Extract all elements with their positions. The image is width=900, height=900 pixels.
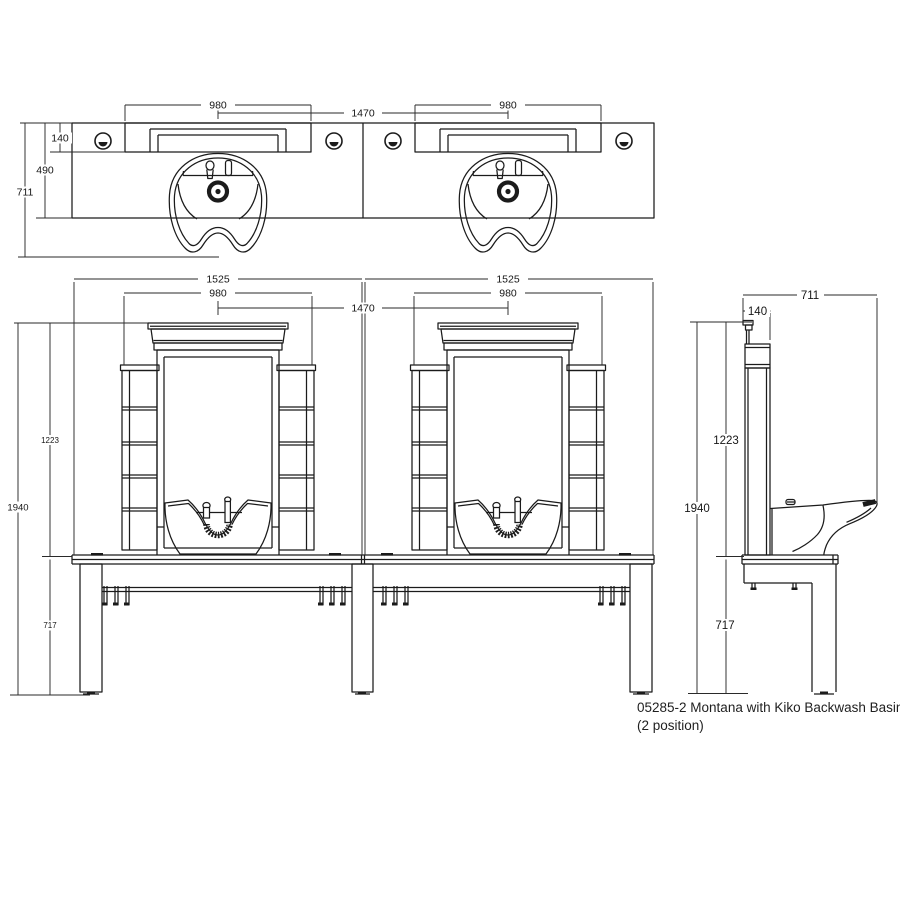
footrest-hooks — [598, 586, 626, 606]
front-dim-mirror-width-right: 980 — [499, 288, 517, 300]
plan-bay-left — [95, 123, 342, 252]
side-dim-overall-height: 1940 — [684, 503, 710, 515]
front-unit-right — [381, 323, 631, 556]
plan-dim-overall-depth: 711 — [17, 187, 34, 199]
footrest-hooks — [318, 586, 346, 606]
side-dim-overall-depth: 711 — [801, 290, 819, 302]
caption: 05285-2 Montana with Kiko Backwash Basin… — [637, 700, 900, 733]
front-unit-left — [91, 323, 341, 556]
front-view: 1525 1525 980 980 1470 1223 1940 717 — [5, 274, 654, 696]
footrest-hooks — [102, 586, 130, 606]
plan-bay-right — [385, 123, 632, 252]
footrest-hooks — [381, 586, 409, 606]
side-dimensions: 711 140 1223 1940 717 — [682, 290, 877, 694]
plan-dim-shelf-depth: 140 — [51, 133, 69, 145]
front-dim-upper-height: 1223 — [41, 436, 59, 445]
plan-dim-shelf-width-right: 980 — [499, 100, 517, 112]
plan-view: 980 1470 980 140 490 711 — [13, 100, 654, 258]
plan-worktop — [72, 123, 654, 218]
technical-drawing: 980 1470 980 140 490 711 — [0, 0, 900, 900]
side-basin — [771, 500, 878, 556]
front-dim-worktop-height: 717 — [43, 621, 57, 630]
side-dim-upper-height: 1223 — [713, 435, 739, 447]
caption-line2: (2 position) — [637, 718, 704, 733]
side-dim-panel-depth: 140 — [748, 306, 767, 318]
side-basin-lip — [863, 502, 876, 505]
side-back-panel — [743, 321, 770, 556]
side-view: 711 140 1223 1940 717 — [682, 290, 877, 695]
side-basin-bowl-curve — [793, 506, 825, 552]
plan-dim-basin-centres: 1470 — [351, 108, 375, 120]
drawing-sheet: 980 1470 980 140 490 711 — [0, 0, 900, 900]
plan-dim-shelf-width-left: 980 — [209, 100, 227, 112]
front-dim-overall-height: 1940 — [7, 503, 28, 514]
front-dim-unit-width-right: 1525 — [496, 274, 520, 286]
plan-dim-worktop-depth: 490 — [36, 165, 54, 177]
front-dim-mirror-width-left: 980 — [209, 288, 227, 300]
caption-line1: 05285-2 Montana with Kiko Backwash Basin — [637, 700, 900, 715]
front-legs — [80, 564, 652, 694]
front-worktop — [72, 555, 654, 564]
side-dim-worktop-height: 717 — [715, 620, 734, 632]
front-footrest-rail — [102, 586, 630, 606]
front-dim-unit-width-left: 1525 — [206, 274, 230, 286]
side-bench — [742, 555, 838, 694]
front-dim-basin-centres: 1470 — [351, 303, 375, 315]
